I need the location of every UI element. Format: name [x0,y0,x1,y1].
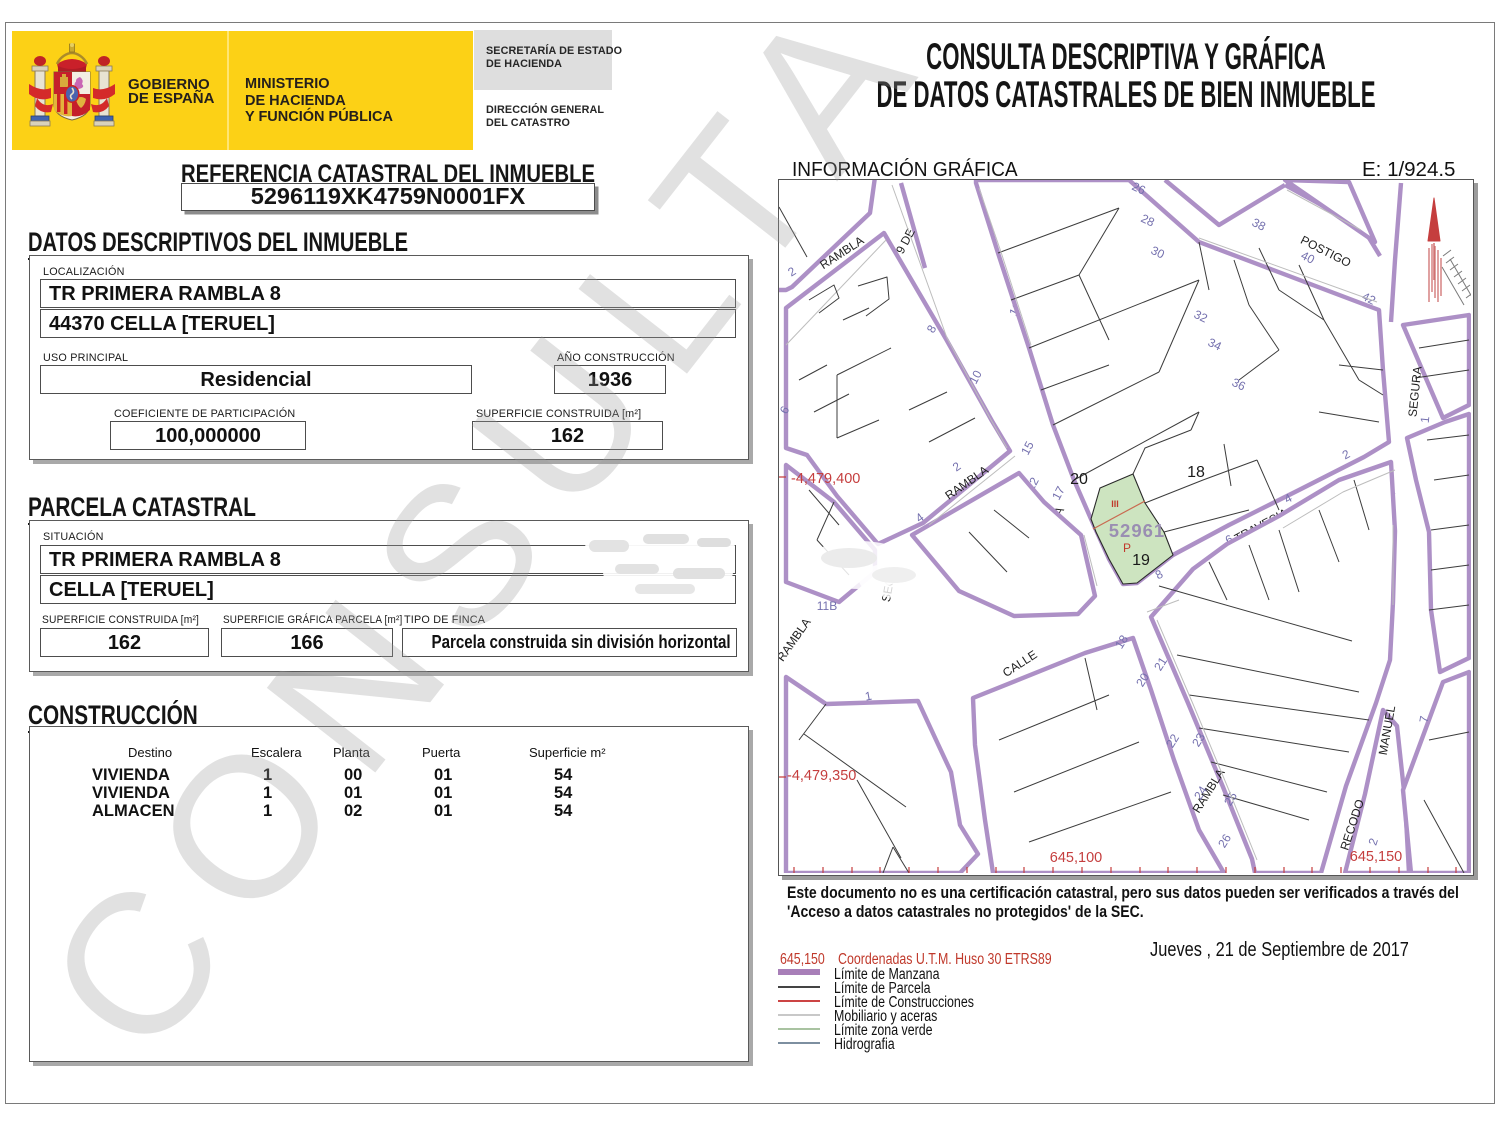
svg-text:17: 17 [1049,484,1068,503]
svg-text:8: 8 [1153,567,1166,583]
svg-text:20: 20 [1070,471,1088,488]
svg-text:III: III [1111,499,1119,509]
svg-text:11B: 11B [817,599,837,613]
svg-text:-4,479,400: -4,479,400 [791,471,860,487]
svg-text:645,150: 645,150 [1350,849,1402,865]
svg-text:-4,479,350: -4,479,350 [787,768,856,784]
svg-text:RAMBLA: RAMBLA [779,615,814,663]
svg-text:18: 18 [1187,464,1205,481]
svg-text:1: 1 [1418,415,1433,423]
svg-text:SEGURA: SEGURA [1405,366,1424,418]
svg-text:38: 38 [1250,215,1269,234]
svg-text:15: 15 [1018,439,1037,458]
svg-text:645,100: 645,100 [1050,850,1102,866]
svg-text:P: P [1123,541,1131,555]
svg-text:19: 19 [1132,552,1150,569]
svg-text:1: 1 [864,689,873,704]
svg-text:26: 26 [1215,831,1234,850]
svg-text:52961: 52961 [1109,520,1165,541]
